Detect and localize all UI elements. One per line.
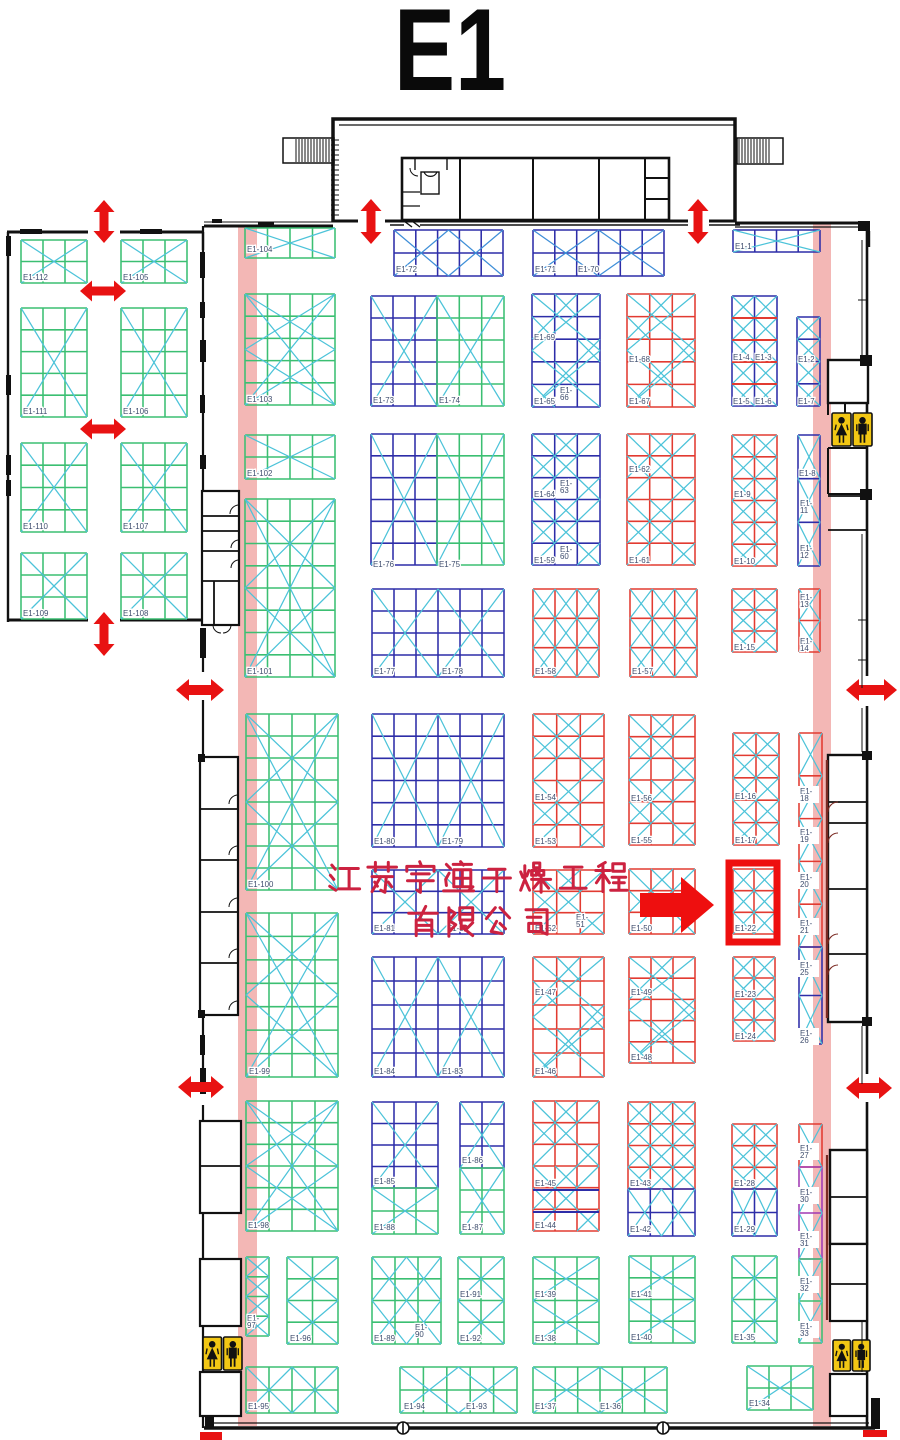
- svg-text:E1-62: E1-62: [629, 465, 650, 474]
- svg-text:E1-23: E1-23: [735, 990, 757, 999]
- svg-text:E1-106: E1-106: [123, 407, 149, 416]
- svg-text:E1-42: E1-42: [630, 1225, 651, 1234]
- svg-text:E1-70: E1-70: [578, 265, 600, 274]
- svg-text:E1-78: E1-78: [442, 667, 464, 676]
- svg-text:E1-104: E1-104: [247, 245, 273, 254]
- svg-text:E1-61: E1-61: [629, 556, 650, 565]
- svg-text:E1-107: E1-107: [123, 522, 148, 531]
- svg-text:E1-111: E1-111: [23, 407, 47, 416]
- svg-text:E1-36: E1-36: [600, 1402, 622, 1411]
- svg-text:E1-34: E1-34: [749, 1399, 771, 1408]
- svg-text:E1-46: E1-46: [535, 1067, 557, 1076]
- svg-text:E1-88: E1-88: [374, 1223, 396, 1232]
- svg-text:E1-8: E1-8: [799, 469, 816, 478]
- svg-text:E1-89: E1-89: [374, 1334, 396, 1343]
- svg-text:E1-64: E1-64: [534, 490, 556, 499]
- svg-text:E1-87: E1-87: [462, 1223, 483, 1232]
- svg-text:E1-103: E1-103: [247, 395, 273, 404]
- svg-text:E1-102: E1-102: [247, 469, 272, 478]
- svg-text:E1-86: E1-86: [462, 1156, 484, 1165]
- svg-text:E1-91: E1-91: [460, 1290, 481, 1299]
- svg-text:E1-53: E1-53: [535, 837, 557, 846]
- svg-text:E1-58: E1-58: [535, 667, 557, 676]
- svg-text:E1-1: E1-1: [735, 242, 752, 251]
- svg-text:E1-73: E1-73: [373, 396, 395, 405]
- svg-text:E1-94: E1-94: [404, 1402, 426, 1411]
- svg-text:E1-65: E1-65: [534, 397, 556, 406]
- svg-text:E1-79: E1-79: [442, 837, 464, 846]
- svg-text:E1-84: E1-84: [374, 1067, 396, 1076]
- svg-text:E1-39: E1-39: [535, 1290, 557, 1299]
- svg-text:E1-95: E1-95: [248, 1402, 270, 1411]
- svg-text:E1-7: E1-7: [798, 397, 815, 406]
- svg-text:E1-99: E1-99: [249, 1067, 271, 1076]
- svg-text:E1-10: E1-10: [734, 557, 756, 566]
- svg-text:E1-112: E1-112: [23, 273, 48, 282]
- svg-text:E1-50: E1-50: [631, 924, 653, 933]
- svg-text:E1-77: E1-77: [374, 667, 395, 676]
- svg-text:E1-100: E1-100: [248, 880, 274, 889]
- svg-text:E1-28: E1-28: [734, 1179, 756, 1188]
- svg-text:E1-93: E1-93: [466, 1402, 488, 1411]
- svg-text:E1-41: E1-41: [631, 1290, 652, 1299]
- svg-text:E1-44: E1-44: [535, 1221, 557, 1230]
- svg-text:E1-16: E1-16: [735, 792, 757, 801]
- svg-text:E1-74: E1-74: [439, 396, 461, 405]
- svg-text:E1-24: E1-24: [735, 1032, 757, 1041]
- svg-text:E1-49: E1-49: [631, 988, 653, 997]
- svg-text:E1-38: E1-38: [535, 1334, 557, 1343]
- svg-text:E1-54: E1-54: [535, 793, 557, 802]
- svg-text:E1-80: E1-80: [374, 837, 396, 846]
- svg-text:E1-71: E1-71: [535, 265, 556, 274]
- svg-text:E1-96: E1-96: [290, 1334, 312, 1343]
- svg-text:E1-4: E1-4: [733, 353, 750, 362]
- svg-text:E1-43: E1-43: [630, 1179, 652, 1188]
- svg-text:E1-15: E1-15: [734, 643, 756, 652]
- svg-text:E1-56: E1-56: [631, 794, 653, 803]
- svg-text:E1-5: E1-5: [733, 397, 750, 406]
- svg-text:E1-109: E1-109: [23, 609, 49, 618]
- svg-text:E1-6: E1-6: [755, 397, 772, 406]
- svg-text:E1-92: E1-92: [460, 1334, 481, 1343]
- svg-text:E1-17: E1-17: [735, 836, 756, 845]
- svg-text:E1-81: E1-81: [374, 924, 395, 933]
- svg-text:E1-40: E1-40: [631, 1333, 653, 1342]
- svg-text:E1-45: E1-45: [535, 1179, 557, 1188]
- svg-text:E1-22: E1-22: [735, 924, 756, 933]
- svg-text:E1-9: E1-9: [734, 490, 751, 499]
- svg-text:E1-83: E1-83: [442, 1067, 464, 1076]
- svg-text:E1-85: E1-85: [374, 1177, 396, 1186]
- svg-text:E1-75: E1-75: [439, 560, 461, 569]
- svg-text:E1-67: E1-67: [629, 397, 650, 406]
- svg-text:E1-69: E1-69: [534, 333, 556, 342]
- svg-text:E1-72: E1-72: [396, 265, 417, 274]
- svg-text:E1-57: E1-57: [632, 667, 653, 676]
- svg-text:E1-3: E1-3: [755, 353, 772, 362]
- svg-text:E1-29: E1-29: [734, 1225, 756, 1234]
- svg-text:E1-108: E1-108: [123, 609, 149, 618]
- svg-text:E1-105: E1-105: [123, 273, 149, 282]
- svg-text:E1-2: E1-2: [798, 355, 815, 364]
- svg-text:E1-101: E1-101: [247, 667, 272, 676]
- svg-text:E1-110: E1-110: [23, 522, 48, 531]
- svg-text:E1-47: E1-47: [535, 988, 556, 997]
- svg-text:E1-98: E1-98: [248, 1221, 270, 1230]
- svg-text:E1: E1: [394, 0, 506, 115]
- svg-text:E1-68: E1-68: [629, 355, 651, 364]
- svg-text:E1-35: E1-35: [734, 1333, 756, 1342]
- svg-text:E1-59: E1-59: [534, 556, 556, 565]
- svg-text:E1-48: E1-48: [631, 1053, 653, 1062]
- svg-text:E1-55: E1-55: [631, 836, 653, 845]
- svg-text:E1-37: E1-37: [535, 1402, 556, 1411]
- svg-text:E1-76: E1-76: [373, 560, 395, 569]
